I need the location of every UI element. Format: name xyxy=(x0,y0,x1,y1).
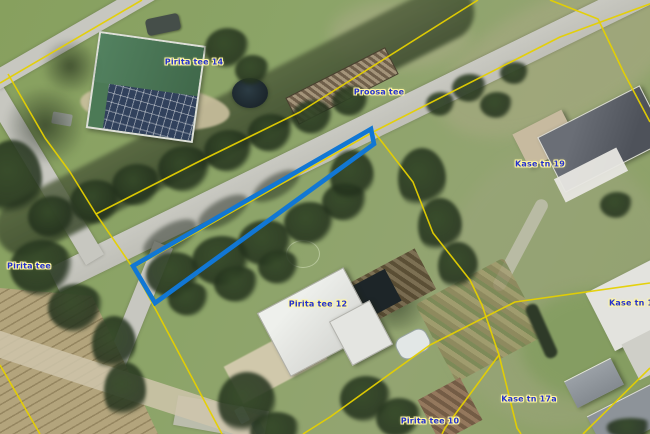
tree-canopy xyxy=(48,284,104,332)
map-label: Pirita tee 12 xyxy=(289,300,348,309)
tree-canopy xyxy=(168,282,210,316)
tree-canopy xyxy=(330,150,374,202)
tree-canopy xyxy=(292,100,334,134)
bush xyxy=(480,92,514,118)
bush xyxy=(500,62,530,84)
tree-canopy xyxy=(235,55,270,85)
tree-canopy xyxy=(438,242,478,290)
map-label: Kase tn 17a xyxy=(501,395,557,404)
greenhouse xyxy=(392,325,433,362)
map-label: Proosa tee xyxy=(354,88,404,97)
car xyxy=(145,13,182,37)
map-label: Pirita tee xyxy=(7,262,51,271)
map-label: Pirita tee 14 xyxy=(165,58,224,67)
map-label: Kase tn 19 xyxy=(515,160,565,169)
map-label: Kase tn 17 xyxy=(609,299,650,308)
house-pirita-tee-14 xyxy=(86,31,207,143)
bush xyxy=(600,192,634,218)
tree-canopy xyxy=(204,130,254,172)
tree-canopy xyxy=(248,114,294,152)
tree-canopy xyxy=(104,362,146,420)
bush xyxy=(426,92,456,116)
tree-canopy xyxy=(258,250,300,284)
tree-shadow xyxy=(38,40,102,92)
tree-canopy xyxy=(112,164,162,206)
bush xyxy=(606,418,650,434)
map-label: Pirita tee 10 xyxy=(401,417,460,426)
aerial-map-viewport[interactable]: Pirita tee 14 Proosa tee Kase tn 19 Piri… xyxy=(0,0,650,434)
tree-canopy xyxy=(214,266,260,302)
